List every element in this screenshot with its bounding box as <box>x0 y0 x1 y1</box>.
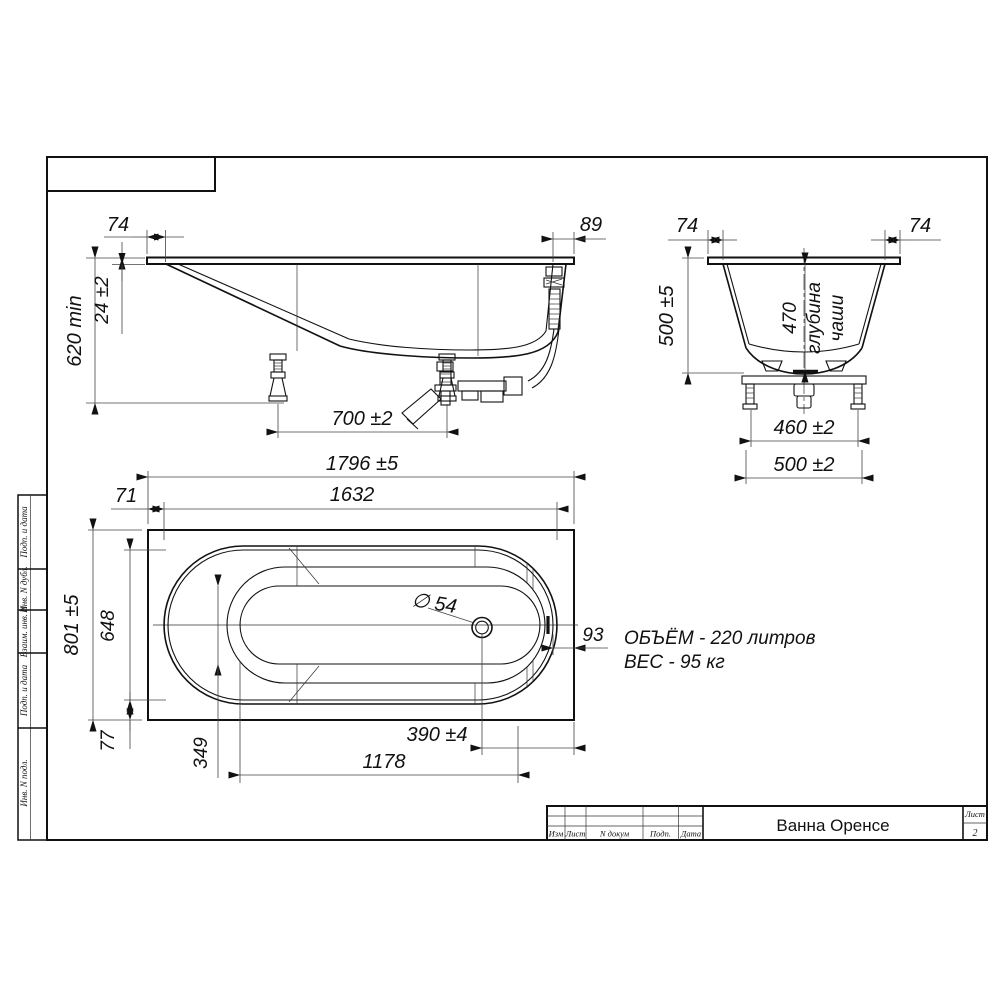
gost-frame: Подп. и дата Инв. N дубл. Взаим. инв. N … <box>18 157 987 840</box>
sheet-label: Лист <box>964 809 985 819</box>
drawing-title: Ванна Оренсе <box>776 816 889 835</box>
dim-side-offset: 77 <box>98 729 119 752</box>
end-view: 74 74 500 ±5 470 глубина чаши 460 ±2 <box>656 215 941 484</box>
note-volume: ОБЪЁМ - 220 литров <box>624 628 816 649</box>
col-data-label: Дата <box>680 829 701 839</box>
bowl-depth-word2: чаши <box>827 294 848 341</box>
dim-bowl-depth: 470 <box>780 302 801 334</box>
dim-rim-overhang-left: 74 <box>107 214 129 236</box>
col-ndokum-label: N докум <box>599 829 630 839</box>
dim-end-overhang-left: 74 <box>676 215 698 237</box>
bowl-depth-word1: глубина <box>804 282 825 354</box>
note-weight: ВЕС - 95 кг <box>624 652 725 673</box>
sheet-number: 2 <box>973 828 978 839</box>
title-block: Изм Лист N докум Подп. Дата Ванна Оренсе… <box>547 806 987 840</box>
dim-leg-spacing: 700 ±2 <box>331 408 392 430</box>
dim-bottom-width: 349 <box>191 737 212 769</box>
dim-overall-width: 801 ±5 <box>61 594 83 656</box>
dim-base-span: 500 ±2 <box>773 454 834 476</box>
plan-view: ∅ 54 1796 ±5 1632 71 801 ±5 648 <box>61 453 608 783</box>
tub-rim-side <box>147 258 574 265</box>
col-list-label: Лист <box>565 829 586 839</box>
dim-bottom-length: 1178 <box>362 751 405 773</box>
end-view-dimensions: 74 74 500 ±5 470 глубина чаши 460 ±2 <box>656 215 941 484</box>
dim-right-offset: 93 <box>582 625 604 646</box>
side-view: 620 min 24 ±2 74 89 700 ±2 <box>64 214 606 438</box>
dim-inner-width: 648 <box>98 610 119 642</box>
notes: ОБЪЁМ - 220 литров ВЕС - 95 кг <box>624 628 816 673</box>
dim-drain-offset: 390 ±4 <box>406 724 467 746</box>
plan-view-dimensions: 1796 ±5 1632 71 801 ±5 648 77 <box>61 453 608 783</box>
top-left-stamp-box <box>47 157 215 191</box>
dim-end-overhang-right: 74 <box>909 215 931 237</box>
dim-rim-thickness: 24 ±2 <box>92 276 113 325</box>
margin-cell-5: Инв. N подл. <box>19 759 29 807</box>
dim-overall-length: 1796 ±5 <box>326 453 399 475</box>
dim-overall-height: 500 ±5 <box>656 285 678 347</box>
dim-end-offset: 71 <box>115 485 137 507</box>
col-podp-label: Подп. <box>649 829 671 839</box>
dim-rim-overhang-right: 89 <box>580 214 602 236</box>
tub-leg-left <box>269 354 287 401</box>
dim-install-height: 620 min <box>64 295 86 366</box>
dim-frame-span: 460 ±2 <box>773 417 834 439</box>
margin-cell-3: Взаим. инв. N <box>19 605 29 658</box>
dim-inner-length: 1632 <box>330 484 375 506</box>
margin-cell-4: Подп. и дата <box>19 664 29 717</box>
margin-cell-1: Подп. и дата <box>19 506 29 559</box>
margin-column: Подп. и дата Инв. N дубл. Взаим. инв. N … <box>18 495 47 840</box>
dim-drain-diameter: ∅ 54 <box>410 589 458 618</box>
drain-siphon <box>402 362 522 429</box>
technical-drawing: Подп. и дата Инв. N дубл. Взаим. инв. N … <box>0 0 1000 1000</box>
col-izm-label: Изм <box>548 829 564 839</box>
drawing-sheet: Подп. и дата Инв. N дубл. Взаим. инв. N … <box>0 0 1000 1000</box>
side-view-dimensions: 620 min 24 ±2 74 89 700 ±2 <box>64 214 606 438</box>
